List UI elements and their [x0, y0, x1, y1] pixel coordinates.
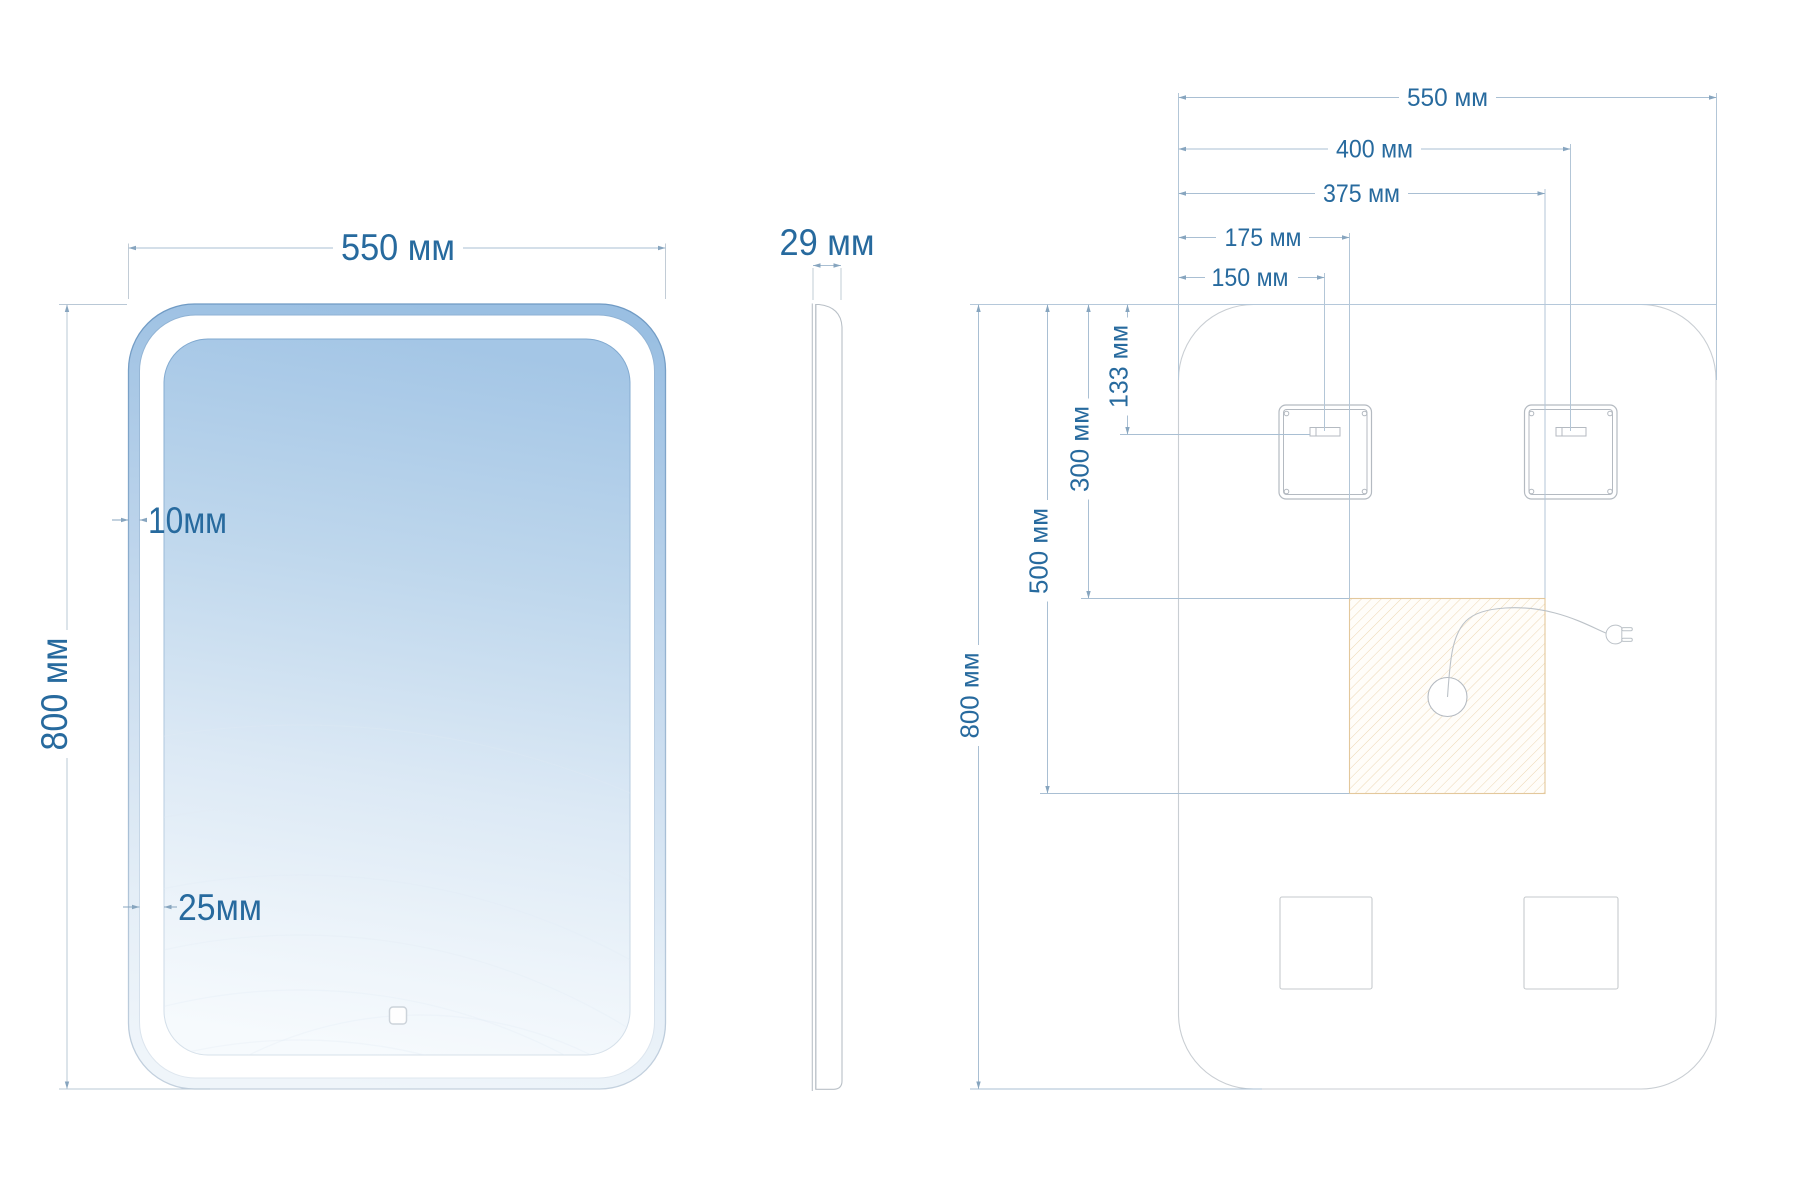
svg-text:375 мм: 375 мм	[1323, 180, 1400, 208]
svg-text:300 мм: 300 мм	[1065, 406, 1095, 492]
svg-text:500 мм: 500 мм	[1024, 508, 1054, 594]
svg-text:550 мм: 550 мм	[341, 227, 455, 268]
svg-text:25мм: 25мм	[178, 887, 262, 928]
svg-text:10мм: 10мм	[148, 500, 227, 541]
svg-text:150 мм: 150 мм	[1212, 264, 1289, 292]
svg-text:29 мм: 29 мм	[780, 222, 875, 263]
svg-text:800 мм: 800 мм	[34, 638, 75, 751]
svg-text:133 мм: 133 мм	[1104, 325, 1134, 408]
svg-text:400 мм: 400 мм	[1336, 136, 1413, 164]
svg-text:800 мм: 800 мм	[955, 653, 985, 739]
svg-text:550 мм: 550 мм	[1407, 84, 1488, 112]
svg-text:175 мм: 175 мм	[1225, 224, 1302, 252]
